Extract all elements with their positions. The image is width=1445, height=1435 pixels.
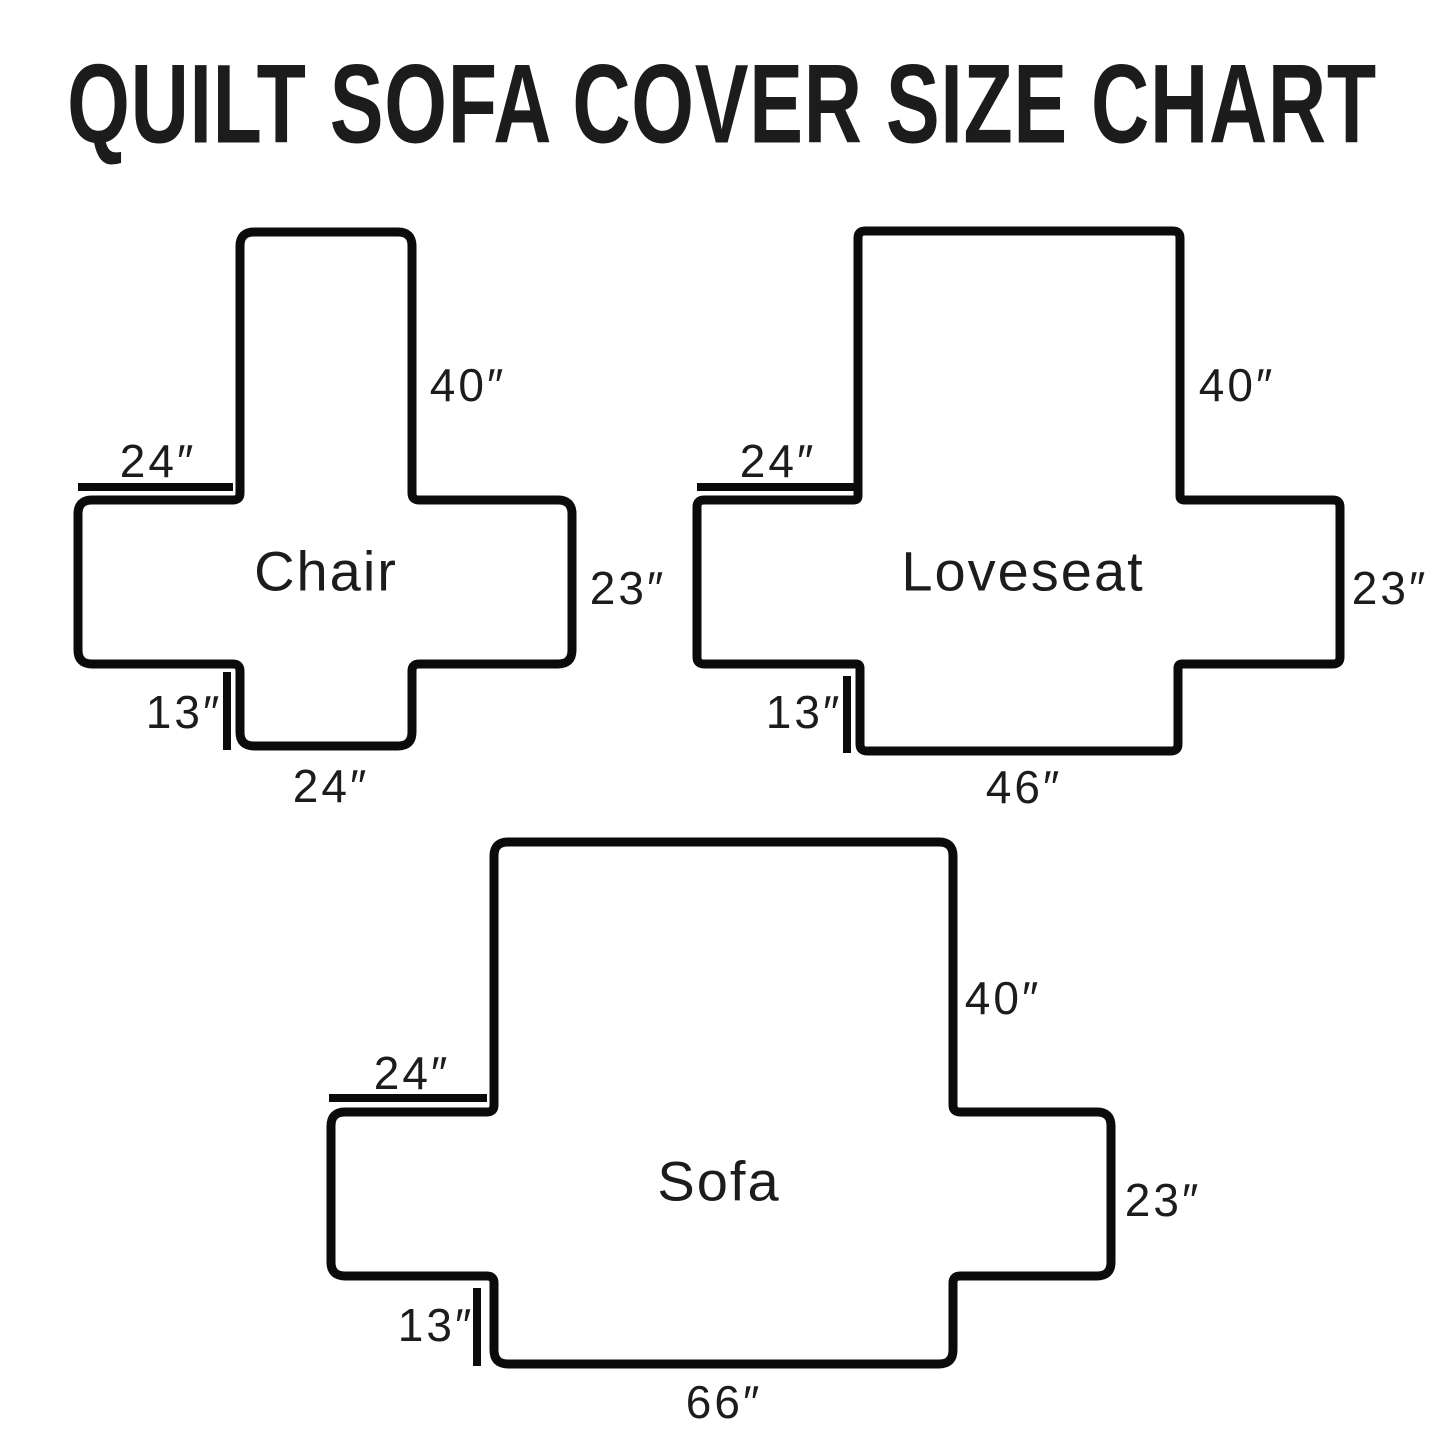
sofa-side-depth-label: 23″ — [1125, 1173, 1201, 1227]
sofa-name-label: Sofa — [657, 1149, 780, 1214]
sofa-arm-width-label: 24″ — [374, 1046, 450, 1100]
chair-seat-width-label: 24″ — [293, 759, 369, 813]
sofa-back-height-label: 40″ — [965, 971, 1041, 1025]
chair-name-label: Chair — [254, 539, 398, 604]
sofa-outline — [331, 842, 1111, 1364]
sofa-skirt-drop-label: 13″ — [398, 1298, 474, 1352]
chair-arm-width-label: 24″ — [120, 434, 196, 488]
loveseat-name-label: Loveseat — [901, 539, 1144, 604]
size-chart: QUILT SOFA COVER SIZE CHART 24″ 40″ Chai… — [0, 0, 1445, 1435]
chair-back-height-label: 40″ — [430, 358, 506, 412]
loveseat-arm-width-label: 24″ — [740, 434, 816, 488]
loveseat-side-depth-label: 23″ — [1352, 561, 1428, 615]
chair-side-depth-label: 23″ — [590, 561, 666, 615]
sofa-seat-width-label: 66″ — [686, 1375, 762, 1429]
loveseat-skirt-drop-label: 13″ — [766, 685, 842, 739]
loveseat-seat-width-label: 46″ — [986, 760, 1062, 814]
chair-skirt-drop-label: 13″ — [146, 685, 222, 739]
loveseat-back-height-label: 40″ — [1199, 358, 1275, 412]
